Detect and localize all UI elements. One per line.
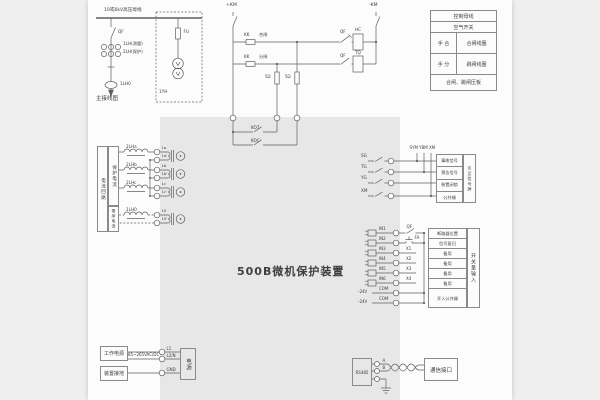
input-row: 备用 xyxy=(429,269,466,279)
comm-interface-box: 通信接口 xyxy=(424,358,458,381)
resistor-label: 5Ω xyxy=(285,75,291,79)
terminal-icon xyxy=(159,356,165,362)
input-row: 备用 xyxy=(429,279,466,289)
signal-side-box: 引至信号屏 xyxy=(463,154,476,203)
hv-busbar-label: 10或6kV高压母线 xyxy=(104,9,142,14)
device-ct-icon xyxy=(168,213,174,225)
input-row: 信号复归 xyxy=(429,239,466,249)
resistor-icon xyxy=(295,72,299,84)
terminal-icon xyxy=(154,149,160,155)
kk-close-contact-icon xyxy=(246,40,255,45)
ground-icon xyxy=(380,379,392,393)
signal-contact-label: TG xyxy=(361,165,367,169)
zero-sequence-ct-icon xyxy=(105,82,117,89)
terminal-icon xyxy=(393,300,399,306)
spare-label: X1 xyxy=(406,247,411,251)
legend-manual-trip: 手 分 xyxy=(431,54,457,74)
ct-zero-label: 1LH0 xyxy=(126,208,137,212)
input-wire-label: IN1 xyxy=(379,227,386,231)
schematic-page: 10或6kV高压母线 QF 1LH(测量) 2LH(保护) 1LH0 主接线图 … xyxy=(0,0,600,400)
resistor-label: 5Ω xyxy=(265,75,271,79)
kk-close-label: KK xyxy=(244,33,250,37)
qf-position-label: QF xyxy=(407,225,413,229)
terminal-icon xyxy=(154,185,160,191)
input-wire-label: COM xyxy=(379,287,388,291)
terminal-icon xyxy=(388,169,394,175)
terminal-icon xyxy=(230,115,236,121)
comm-terminal-label: B xyxy=(383,366,386,370)
signal-row: 预告信号 xyxy=(437,167,462,179)
pt-icon xyxy=(173,58,184,79)
protect-current-box: 保护电流 xyxy=(108,146,119,206)
qf-bottom-label: QF xyxy=(340,54,346,58)
signal-contact-label: XM xyxy=(361,189,367,193)
pt-label: 1YH xyxy=(159,90,167,94)
breaker-icon xyxy=(111,28,116,39)
closing-coil-icon xyxy=(353,34,363,50)
zero-ct-label: 1LH0 xyxy=(120,82,131,86)
signal-contact-label: SG xyxy=(361,154,367,158)
twisted-pair-icon xyxy=(380,364,425,371)
reset-button-icon xyxy=(399,236,424,243)
minus24v-label: -24V xyxy=(358,290,367,294)
terminal-icon xyxy=(375,362,380,367)
closing-coil-label: HC xyxy=(355,28,361,32)
positive-rail xyxy=(233,12,237,115)
spare-label: X4 xyxy=(406,277,411,281)
input-wire-label: IN5 xyxy=(379,267,386,271)
reset-button-label: FA xyxy=(415,236,420,240)
legend-row-control-bus: 控制母线 xyxy=(431,11,496,22)
trip-label: 分闸 xyxy=(259,55,267,59)
communication-circuit xyxy=(372,362,424,394)
qf-aux-no-icon xyxy=(341,58,350,64)
ct-c-label: 2LHc xyxy=(126,181,136,185)
voltage-range-label: 85~265VAC/DC xyxy=(128,353,159,357)
ct-a-label: 2LHa xyxy=(126,145,137,149)
terminal-icon xyxy=(159,349,165,355)
terminal-icon xyxy=(154,193,160,199)
work-power-box: 工作电源 xyxy=(100,346,128,361)
terminal-icon xyxy=(393,280,399,286)
terminal-label: 1a xyxy=(162,146,167,150)
terminal-icon xyxy=(154,212,160,218)
power-module-box: 电源 xyxy=(180,348,196,380)
legend-closing-coil: 合闸线圈 xyxy=(457,33,496,53)
kk-trip-label: KK xyxy=(244,55,250,59)
negative-rail xyxy=(376,12,380,64)
input-wire-label: COM xyxy=(379,297,388,301)
terminal-icon xyxy=(154,167,160,173)
terminal-icon xyxy=(154,157,160,163)
terminal-icon xyxy=(388,180,394,186)
terminal-icon xyxy=(375,377,380,382)
input-row: 开入公共端 xyxy=(429,289,466,309)
main-wiring-diagram xyxy=(96,12,202,102)
terminal-icon xyxy=(388,193,394,199)
koc-label: KOC xyxy=(251,139,260,143)
input-row: 备用 xyxy=(429,249,466,259)
terminal-label: 1c xyxy=(162,182,167,186)
kot-label: KOT xyxy=(251,126,259,130)
close-label: 合闸 xyxy=(259,33,267,37)
wiring-layer xyxy=(0,0,600,400)
terminal-label: L1 xyxy=(167,347,172,351)
input-wire-label: IN4 xyxy=(379,257,386,261)
signal-circuit xyxy=(368,153,436,199)
legend-row-air-switch: 空气开关 xyxy=(431,22,496,33)
qf-top-label: QF xyxy=(340,30,346,34)
koc-contact-icon xyxy=(233,140,297,145)
terminal-icon xyxy=(154,220,160,226)
ct-measure-label: 1LH(测量) xyxy=(123,42,143,46)
ct-protect-label: 2LH(保护) xyxy=(123,50,143,54)
breaker-label: QF xyxy=(118,30,124,34)
input-wire-label: IN2 xyxy=(379,237,386,241)
terminal-icon xyxy=(159,370,165,376)
current-loop-box: 电流回路 xyxy=(97,146,108,232)
spare-label: X3 xyxy=(406,267,411,271)
terminal-icon xyxy=(154,175,160,181)
device-ct-icon xyxy=(168,168,174,180)
signal-bus-label: XM xyxy=(429,146,435,150)
signal-row: 装置闭锁 xyxy=(437,180,462,192)
terminal-icon xyxy=(393,250,399,256)
qf-position-contact-icon xyxy=(399,229,424,234)
signal-row: 事故信号 xyxy=(437,155,462,167)
control-legend-table: 控制母线 空气开关 手 合 合闸线圈 手 分 跳闸线圈 合闸、跳闸压板 xyxy=(430,10,497,91)
input-row: 断路器位置 xyxy=(429,229,466,239)
device-ct-icon xyxy=(168,186,174,198)
ct-b-label: 2LHb xyxy=(126,163,137,167)
fuse-label: FU xyxy=(184,30,189,34)
terminal-icon xyxy=(393,290,399,296)
spare-label: X2 xyxy=(406,257,411,261)
trip-coil-icon xyxy=(353,56,363,72)
signal-row: 公共端 xyxy=(437,192,462,204)
legend-trip-coil: 跳闸线圈 xyxy=(457,54,496,74)
input-side-box: 开关量输入 xyxy=(467,228,480,308)
terminal-label: 1a' xyxy=(162,154,168,158)
signal-bus-label: SYM xyxy=(410,146,418,150)
negative-bus-label: -KM xyxy=(369,4,378,9)
comm-module-box: RS485 xyxy=(352,358,372,386)
terminal-icon xyxy=(294,115,300,121)
signal-legend-table: 事故信号 预告信号 装置闭锁 公共端 xyxy=(436,154,463,203)
input-wire-label: IN6 xyxy=(379,277,386,281)
terminal-icon xyxy=(375,369,380,374)
signal-contact-label: YG xyxy=(361,176,367,180)
legend-footer: 合闸、跳闸压板 xyxy=(431,75,496,90)
positive-bus-label: +KM xyxy=(226,4,237,9)
trip-coil-label: TQ xyxy=(355,51,361,55)
device-ct-icon xyxy=(168,150,174,162)
terminal-icon xyxy=(274,115,280,121)
legend-manual-close: 手 合 xyxy=(431,33,457,53)
kk-trip-contact-icon xyxy=(246,62,255,67)
terminal-icon xyxy=(393,260,399,266)
input-row: 备用 xyxy=(429,259,466,269)
resistor-icon xyxy=(275,72,279,84)
terminal-label: 10' xyxy=(162,217,168,221)
terminal-label: 1b' xyxy=(162,172,168,176)
device-title: 500B微机保护装置 xyxy=(237,263,344,279)
minus24v-label: -24V xyxy=(358,300,367,304)
device-ground-box: 装置接地 xyxy=(100,366,128,381)
current-input-circuit xyxy=(119,149,185,226)
terminal-label: 1c' xyxy=(162,190,168,194)
terminal-icon xyxy=(393,230,399,236)
qf-aux-nc-icon xyxy=(341,35,352,43)
terminal-icon xyxy=(393,240,399,246)
zero-current-box: 零序电流 xyxy=(108,206,119,232)
signal-bus-label: YBM xyxy=(419,146,428,150)
terminal-label: L2/N xyxy=(167,354,176,358)
terminal-label: 1b xyxy=(162,164,167,168)
diagram-caption: 主接线图 xyxy=(96,97,118,103)
input-wire-label: IN3 xyxy=(379,247,386,251)
terminal-icon xyxy=(393,270,399,276)
terminal-label: GND xyxy=(167,368,176,372)
fuse-icon xyxy=(176,28,181,39)
terminal-icon xyxy=(388,158,394,164)
twisted-pair-icon xyxy=(380,364,425,371)
comm-terminal-label: A xyxy=(383,359,386,363)
terminal-label: 10 xyxy=(162,209,167,213)
input-legend-table: 断路器位置 信号复归 备用 备用 备用 备用 开入公共端 xyxy=(428,228,467,308)
